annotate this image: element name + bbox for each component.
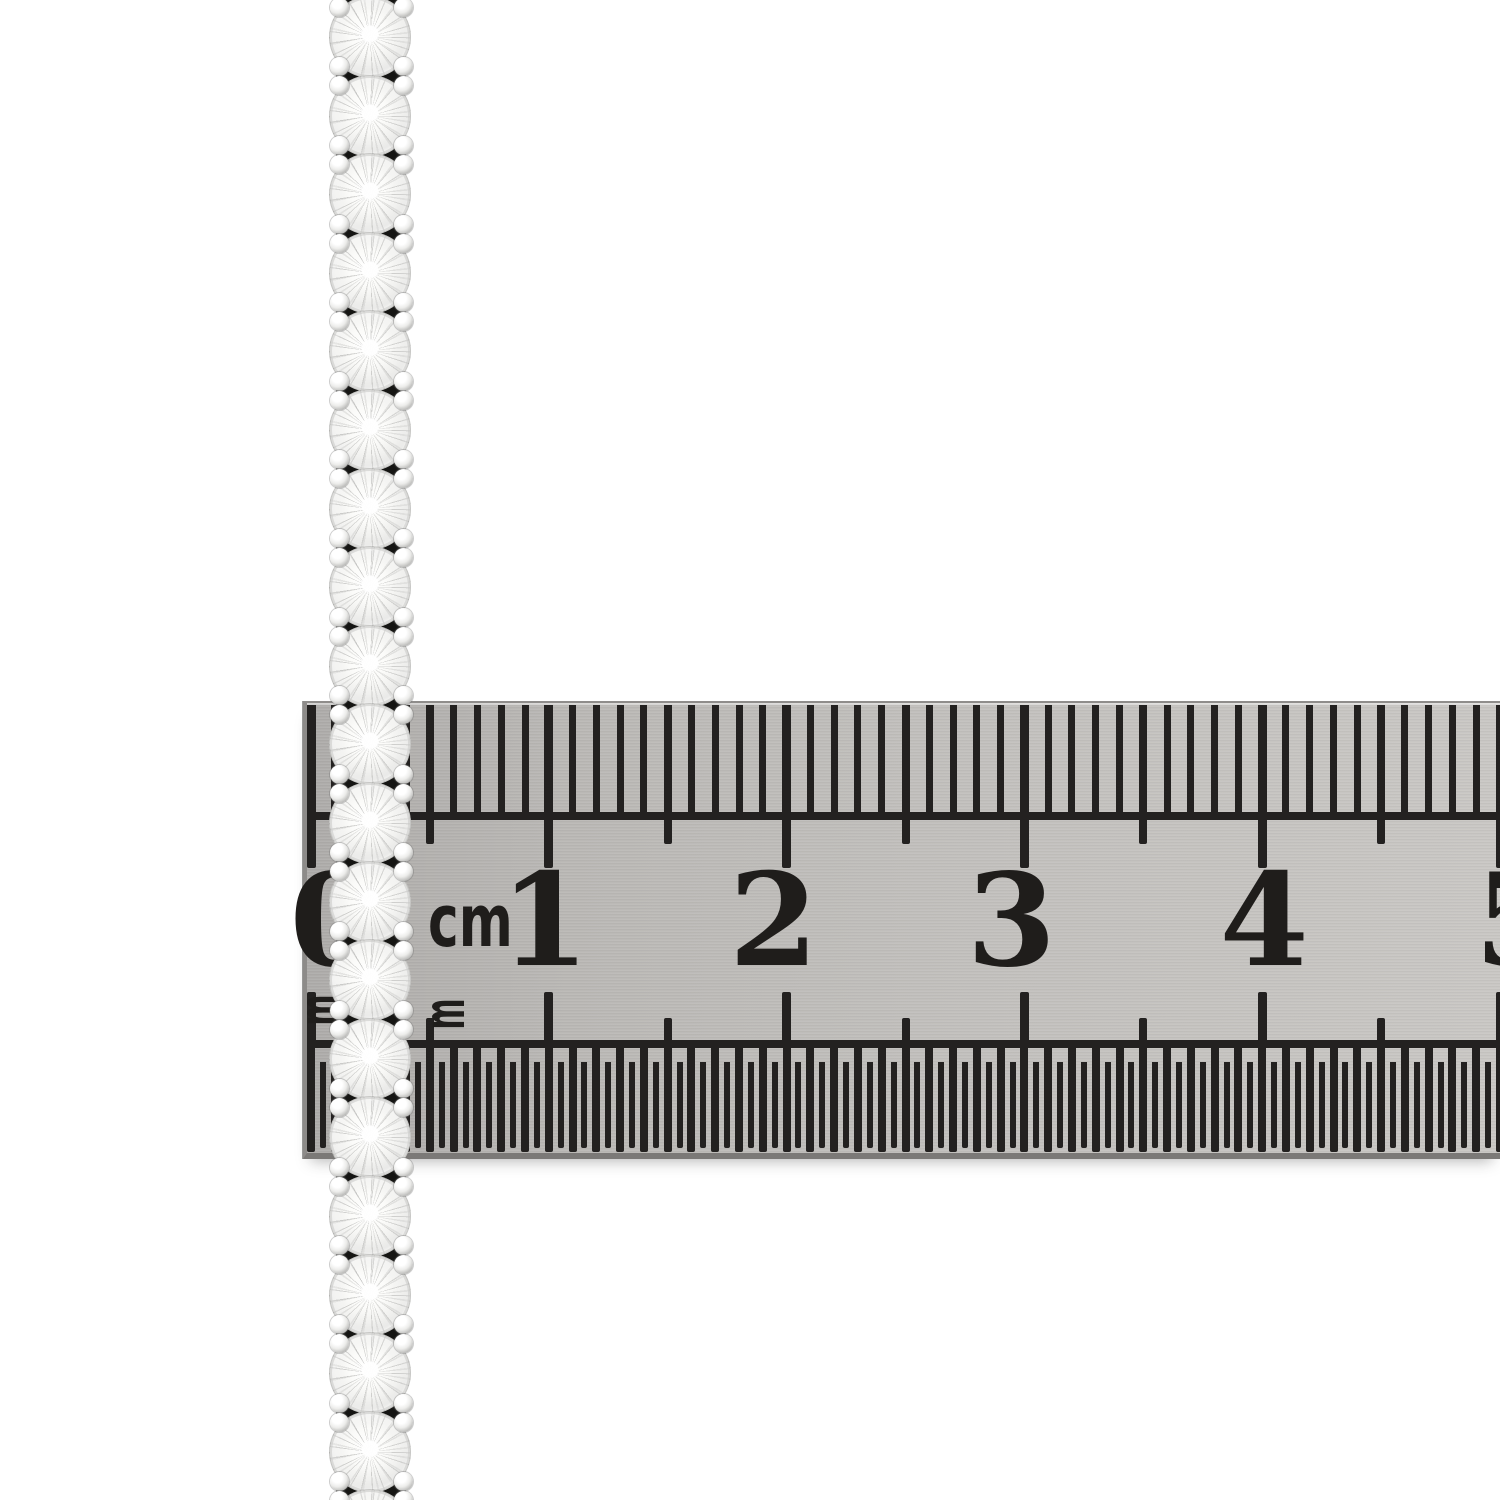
mm-down-tick (1258, 1048, 1266, 1152)
half-mm-down-tick (605, 1062, 611, 1148)
mm-down-tick (711, 1048, 719, 1152)
half-mm-down-tick (891, 1062, 897, 1148)
mm-tick (1330, 705, 1337, 816)
cm-up-tick (544, 992, 553, 1048)
half-mm-down-tick (938, 1062, 944, 1148)
half-mm-down-tick (677, 1062, 683, 1148)
cm-tick (782, 705, 791, 868)
half-mm-down-tick (724, 1062, 730, 1148)
mm-down-tick (1139, 1048, 1147, 1152)
prong-bead (330, 1236, 349, 1255)
prong-bead (394, 1158, 413, 1177)
half-mm-down-tick (439, 1062, 445, 1148)
prong-bead (394, 136, 413, 155)
mm-tick (950, 705, 957, 816)
mm-down-tick (830, 1048, 838, 1152)
prong-bead (330, 765, 349, 784)
mm-down-tick (783, 1048, 791, 1152)
photo-canvas: 012345 cm mm (0, 0, 1500, 1500)
half-mm-down-tick (534, 1062, 540, 1148)
half-cm-tick (664, 705, 672, 844)
prong-bead (394, 1079, 413, 1098)
half-mm-down-tick (867, 1062, 873, 1148)
prong-bead (330, 1255, 349, 1274)
prong-bead (394, 1236, 413, 1255)
prong-bead (330, 136, 349, 155)
half-mm-down-tick (748, 1062, 754, 1148)
prong-bead (394, 529, 413, 548)
prong-bead (330, 784, 349, 803)
prong-bead (330, 1315, 349, 1334)
half-mm-down-tick (795, 1062, 801, 1148)
mm-tick (522, 705, 529, 816)
half-mm-down-tick (700, 1062, 706, 1148)
mm-tick (593, 705, 600, 816)
half-mm-down-tick (463, 1062, 469, 1148)
mm-tick (926, 705, 933, 816)
mm-tick (759, 705, 766, 816)
half-mm-down-tick (1176, 1062, 1182, 1148)
half-mm-down-tick (1271, 1062, 1277, 1148)
prong-bead (394, 372, 413, 391)
half-mm-down-tick (1342, 1062, 1348, 1148)
mm-down-tick (1353, 1048, 1361, 1152)
mm-down-tick (1116, 1048, 1124, 1152)
mm-down-tick (307, 1048, 315, 1152)
prong-bead (330, 1001, 349, 1020)
mm-down-tick (1282, 1048, 1290, 1152)
cm-tick (1258, 705, 1267, 868)
mm-tick (640, 705, 647, 816)
mm-down-tick (759, 1048, 767, 1152)
half-mm-down-tick (558, 1062, 564, 1148)
ruler-unit-cm-label: cm (428, 885, 513, 957)
mm-tick (807, 705, 814, 816)
half-mm-down-tick (510, 1062, 516, 1148)
cm-up-tick (782, 992, 791, 1048)
mm-down-tick (1163, 1048, 1171, 1152)
prong-bead (394, 1098, 413, 1117)
mm-down-tick (664, 1048, 672, 1152)
half-mm-down-tick (986, 1062, 992, 1148)
mm-tick (569, 705, 576, 816)
mm-down-tick (426, 1048, 434, 1152)
prong-bead (394, 1255, 413, 1274)
mm-down-tick (521, 1048, 529, 1152)
mm-down-tick (1330, 1048, 1338, 1152)
half-mm-down-tick (581, 1062, 587, 1148)
mm-tick (1211, 705, 1218, 816)
mm-down-tick (569, 1048, 577, 1152)
half-mm-down-tick (1081, 1062, 1087, 1148)
prong-bead (394, 57, 413, 76)
half-mm-down-tick (1200, 1062, 1206, 1148)
half-mm-down-tick (1461, 1062, 1467, 1148)
ruler-number-5: 5 (1474, 857, 1500, 985)
prong-bead (330, 1491, 349, 1500)
prong-bead (394, 1001, 413, 1020)
ruler-top-baseline (307, 812, 1500, 820)
prong-bead (394, 1413, 413, 1432)
mm-tick (973, 705, 980, 816)
half-mm-down-tick (629, 1062, 635, 1148)
prong-bead (330, 312, 349, 331)
prong-bead (330, 1413, 349, 1432)
half-mm-down-tick (486, 1062, 492, 1148)
prong-bead (330, 155, 349, 174)
prong-bead (330, 1079, 349, 1098)
cm-up-tick (1020, 992, 1029, 1048)
mm-tick (688, 705, 695, 816)
mm-tick (997, 705, 1004, 816)
prong-bead (330, 941, 349, 960)
half-mm-down-tick (772, 1062, 778, 1148)
prong-bead (330, 627, 349, 646)
mm-tick (1306, 705, 1313, 816)
mm-down-tick (1306, 1048, 1314, 1152)
prong-bead (394, 0, 413, 17)
half-mm-down-tick (1057, 1062, 1063, 1148)
prong-bead (394, 450, 413, 469)
prong-bead (330, 705, 349, 724)
half-mm-down-tick (1105, 1062, 1111, 1148)
cm-up-tick (1496, 992, 1500, 1048)
half-mm-down-tick (1295, 1062, 1301, 1148)
prong-bead (330, 469, 349, 488)
prong-bead (394, 1315, 413, 1334)
prong-bead (330, 57, 349, 76)
prong-bead (330, 686, 349, 705)
mm-tick (1045, 705, 1052, 816)
prong-bead (394, 391, 413, 410)
mm-down-tick (497, 1048, 505, 1152)
mm-down-tick (545, 1048, 553, 1152)
ruler-number-4: 4 (1220, 857, 1309, 985)
mm-tick (878, 705, 885, 816)
prong-bead (394, 862, 413, 881)
half-cm-tick (902, 705, 910, 844)
ruler-number-3: 3 (967, 857, 1056, 985)
mm-tick (1449, 705, 1456, 816)
prong-bead (394, 1394, 413, 1413)
mm-tick (831, 705, 838, 816)
mm-down-tick (473, 1048, 481, 1152)
mm-down-tick (1234, 1048, 1242, 1152)
prong-bead (394, 548, 413, 567)
prong-bead (394, 765, 413, 784)
prong-bead (394, 1020, 413, 1039)
prong-bead (330, 234, 349, 253)
ruler: 012345 cm mm (303, 701, 1500, 1159)
half-mm-down-tick (1033, 1062, 1039, 1148)
prong-bead (330, 608, 349, 627)
mm-down-tick (1448, 1048, 1456, 1152)
mm-down-tick (1068, 1048, 1076, 1152)
cm-tick (1496, 705, 1500, 868)
mm-tick (617, 705, 624, 816)
mm-down-tick (1020, 1048, 1028, 1152)
mm-down-tick (854, 1048, 862, 1152)
prong-bead (394, 922, 413, 941)
cm-tick (1020, 705, 1029, 868)
diamond-necklace-strand (325, 0, 417, 1500)
half-cm-tick (426, 705, 434, 844)
prong-bead (394, 234, 413, 253)
half-mm-down-tick (1128, 1062, 1134, 1148)
mm-tick (736, 705, 743, 816)
cm-tick (307, 705, 316, 868)
prong-bead (330, 76, 349, 95)
ruler-number-2: 2 (729, 857, 818, 985)
mm-tick (1164, 705, 1171, 816)
prong-bead (330, 922, 349, 941)
prong-bead (330, 293, 349, 312)
mm-tick (1354, 705, 1361, 816)
prong-bead (394, 941, 413, 960)
prong-bead (394, 76, 413, 95)
mm-tick (1068, 705, 1075, 816)
mm-down-tick (450, 1048, 458, 1152)
mm-down-tick (1425, 1048, 1433, 1152)
prong-bead (330, 1177, 349, 1196)
mm-tick (1187, 705, 1194, 816)
prong-bead (394, 1177, 413, 1196)
mm-down-tick (640, 1048, 648, 1152)
mm-down-tick (973, 1048, 981, 1152)
half-mm-down-tick (1438, 1062, 1444, 1148)
half-mm-down-tick (1485, 1062, 1491, 1148)
prong-bead (394, 1472, 413, 1491)
mm-tick (498, 705, 505, 816)
ruler-unit-mm-label: m (419, 998, 476, 1029)
half-mm-down-tick (1319, 1062, 1325, 1148)
prong-bead (330, 215, 349, 234)
prong-bead (394, 293, 413, 312)
half-cm-tick (1139, 705, 1147, 844)
prong-bead (394, 469, 413, 488)
half-cm-tick (1377, 705, 1385, 844)
mm-tick (712, 705, 719, 816)
mm-down-tick (925, 1048, 933, 1152)
prong-bead (330, 372, 349, 391)
mm-tick (854, 705, 861, 816)
mm-down-tick (592, 1048, 600, 1152)
mm-down-tick (735, 1048, 743, 1152)
prong-bead (394, 608, 413, 627)
prong-bead (330, 0, 349, 17)
prong-bead (330, 391, 349, 410)
prong-bead (394, 155, 413, 174)
mm-tick (1282, 705, 1289, 816)
mm-down-tick (616, 1048, 624, 1152)
prong-bead (330, 1098, 349, 1117)
mm-down-tick (1187, 1048, 1195, 1152)
half-mm-down-tick (1366, 1062, 1372, 1148)
mm-tick (1116, 705, 1123, 816)
mm-tick (1235, 705, 1242, 816)
prong-bead (394, 1491, 413, 1500)
mm-tick (1401, 705, 1408, 816)
prong-bead (330, 1334, 349, 1353)
prong-bead (330, 1394, 349, 1413)
mm-down-tick (1401, 1048, 1409, 1152)
cm-tick (544, 705, 553, 868)
mm-tick (1473, 705, 1480, 816)
prong-bead (394, 312, 413, 331)
mm-tick (474, 705, 481, 816)
half-cm-up-tick (902, 1018, 910, 1048)
ruler-number-1: 1 (500, 857, 589, 985)
half-mm-down-tick (914, 1062, 920, 1148)
mm-down-tick (687, 1048, 695, 1152)
mm-tick (1425, 705, 1432, 816)
prong-bead (330, 548, 349, 567)
half-cm-up-tick (1377, 1018, 1385, 1048)
prong-bead (330, 1158, 349, 1177)
half-mm-down-tick (653, 1062, 659, 1148)
mm-down-tick (997, 1048, 1005, 1152)
prong-bead (330, 862, 349, 881)
half-mm-down-tick (962, 1062, 968, 1148)
half-mm-down-tick (1390, 1062, 1396, 1148)
prong-bead (330, 1020, 349, 1039)
half-mm-down-tick (1152, 1062, 1158, 1148)
half-mm-down-tick (819, 1062, 825, 1148)
mm-down-tick (1092, 1048, 1100, 1152)
mm-down-tick (949, 1048, 957, 1152)
mm-down-tick (1211, 1048, 1219, 1152)
prong-bead (330, 529, 349, 548)
half-mm-down-tick (1247, 1062, 1253, 1148)
prong-bead (394, 215, 413, 234)
mm-tick (450, 705, 457, 816)
half-cm-up-tick (664, 1018, 672, 1048)
half-mm-down-tick (1010, 1062, 1016, 1148)
prong-bead (394, 686, 413, 705)
mm-down-tick (1472, 1048, 1480, 1152)
mm-down-tick (1044, 1048, 1052, 1152)
mm-tick (1092, 705, 1099, 816)
prong-bead (394, 705, 413, 724)
prong-bead (394, 627, 413, 646)
prong-bead (330, 450, 349, 469)
prong-bead (394, 843, 413, 862)
half-cm-up-tick (1139, 1018, 1147, 1048)
mm-down-tick (902, 1048, 910, 1152)
cm-up-tick (1258, 992, 1267, 1048)
mm-down-tick (878, 1048, 886, 1152)
prong-bead (394, 1334, 413, 1353)
mm-down-tick (806, 1048, 814, 1152)
prong-bead (330, 843, 349, 862)
mm-down-tick (1496, 1048, 1500, 1152)
prong-bead (394, 784, 413, 803)
mm-down-tick (1377, 1048, 1385, 1152)
half-mm-down-tick (1414, 1062, 1420, 1148)
half-mm-down-tick (1224, 1062, 1230, 1148)
prong-bead (330, 1472, 349, 1491)
half-mm-down-tick (843, 1062, 849, 1148)
